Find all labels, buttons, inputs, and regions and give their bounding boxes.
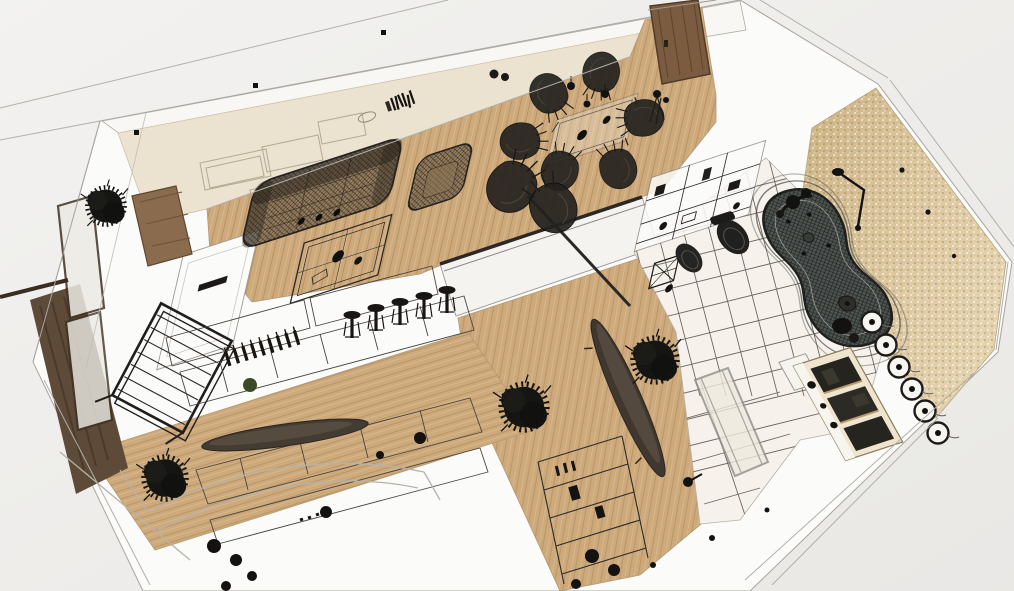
screenshot-root [0,0,1014,591]
mosaic-dot [925,209,930,214]
kitchen-sprig [243,378,257,392]
bath-stool-blob [849,333,859,343]
mosaic-dot [899,167,904,172]
speaker-knob [501,73,509,81]
speaker-knob [490,70,499,79]
mosaic-dot [952,254,956,258]
floorplan-render [0,0,1014,591]
bath-stool-blob [832,318,852,334]
